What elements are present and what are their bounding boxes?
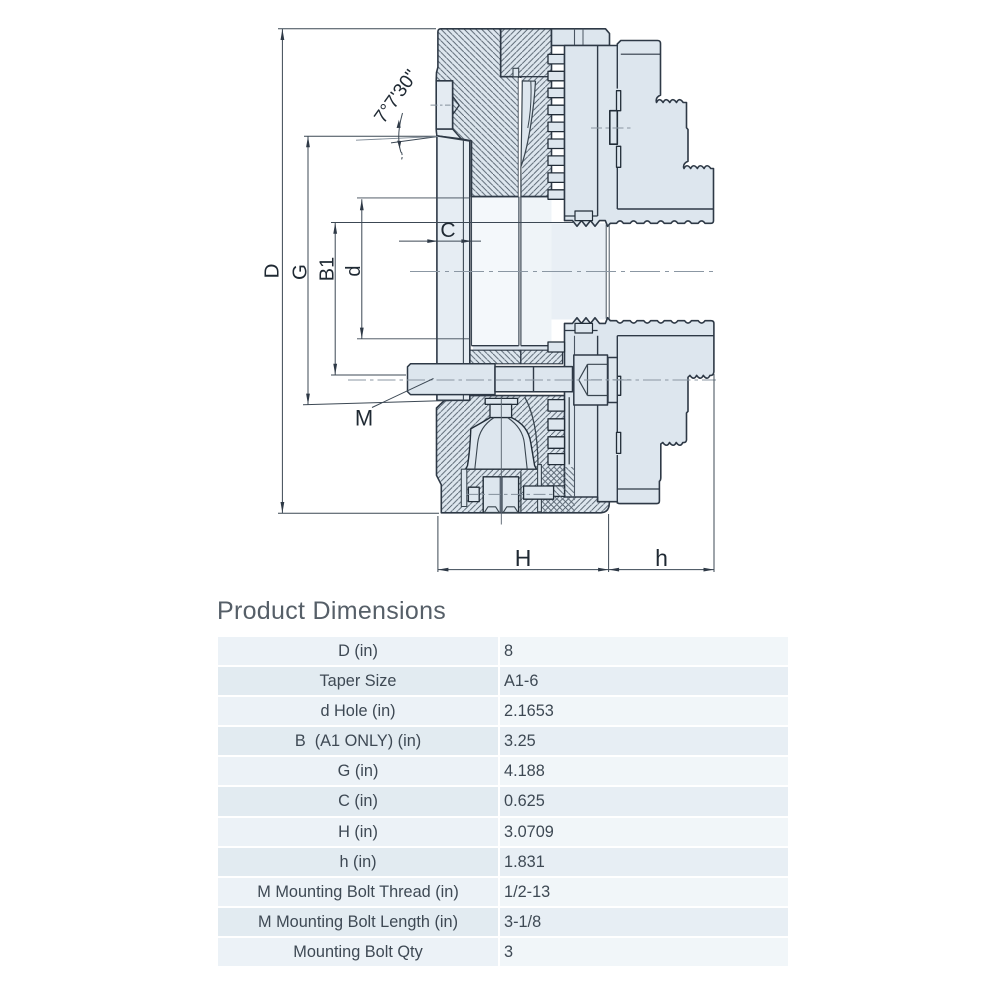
svg-text:D: D: [261, 264, 284, 279]
svg-text:h: h: [655, 545, 668, 571]
svg-text:7°7'30": 7°7'30": [370, 66, 422, 127]
svg-text:M: M: [355, 406, 373, 431]
svg-text:B1: B1: [317, 257, 339, 281]
svg-text:G: G: [289, 264, 312, 280]
svg-text:H: H: [515, 545, 532, 571]
svg-text:C: C: [440, 219, 455, 242]
svg-text:d: d: [343, 265, 365, 276]
